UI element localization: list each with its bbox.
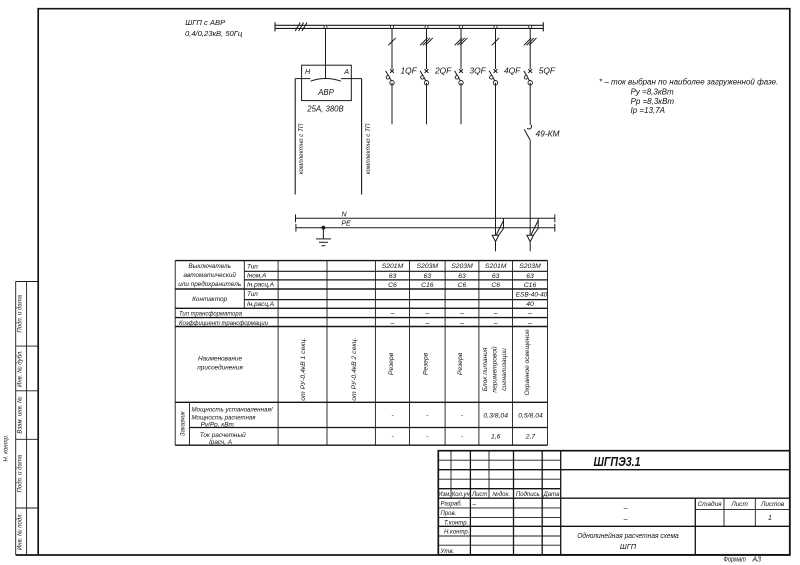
svg-text:–: – <box>390 320 395 327</box>
svg-text:Кол.уч: Кол.уч <box>452 492 470 498</box>
svg-text:ШГПЭ3.1: ШГПЭ3.1 <box>594 454 641 469</box>
svg-text:Подп. и дата: Подп. и дата <box>18 294 24 332</box>
svg-text:S203M: S203M <box>451 263 473 270</box>
svg-text:1,6: 1,6 <box>491 433 501 440</box>
svg-text:Подпись: Подпись <box>516 492 540 498</box>
svg-text:S203M: S203M <box>417 263 439 270</box>
svg-text:или предохранитель: или предохранитель <box>178 280 241 288</box>
svg-text:63: 63 <box>458 273 466 280</box>
svg-text:периметровой: периметровой <box>491 346 499 392</box>
svg-text:Iн,расц,А: Iн,расц,А <box>247 282 274 289</box>
svg-text:Заказчик: Заказчик <box>180 410 186 436</box>
svg-text:0,4/0,23кВ, 50Гц: 0,4/0,23кВ, 50Гц <box>185 29 243 38</box>
svg-text:Инв. № дубл.: Инв. № дубл. <box>17 350 24 387</box>
svg-text:Тип трансформатора: Тип трансформатора <box>179 311 242 318</box>
svg-text:Iр =13,7А: Iр =13,7А <box>631 106 665 115</box>
svg-text:63: 63 <box>492 273 500 280</box>
svg-text:Мощность расчетная: Мощность расчетная <box>192 415 257 422</box>
svg-text:Тип: Тип <box>247 291 258 298</box>
svg-text:присоединения: присоединения <box>197 363 243 371</box>
svg-text:–: – <box>472 502 477 508</box>
svg-text:Коэффициент трансформации: Коэффициент трансформации <box>179 320 268 327</box>
svg-text:2QF: 2QF <box>434 66 452 76</box>
svg-text:Блок питания: Блок питания <box>482 347 489 391</box>
svg-text:Охранное освещение: Охранное освещение <box>524 329 531 396</box>
svg-text:С16: С16 <box>524 282 537 289</box>
svg-text:–: – <box>493 320 498 327</box>
svg-text:автоматический: автоматический <box>183 271 236 279</box>
svg-text:Утв.: Утв. <box>440 549 455 555</box>
svg-text:5QF: 5QF <box>539 66 556 76</box>
svg-text:Мощность установленная/: Мощность установленная/ <box>192 406 274 413</box>
svg-text:Формат: Формат <box>723 557 746 564</box>
svg-text:С16: С16 <box>421 282 434 289</box>
svg-text:АВР: АВР <box>317 88 334 97</box>
svg-text:Тип: Тип <box>247 264 258 271</box>
svg-text:Т.контр.: Т.контр. <box>444 520 468 526</box>
svg-text:Резерв: Резерв <box>422 352 429 375</box>
svg-text:Подп. и дата: Подп. и дата <box>18 454 24 492</box>
svg-text:Лист: Лист <box>471 492 487 498</box>
svg-text:Инв. № подл.: Инв. № подл. <box>17 513 24 550</box>
svg-text:S201M: S201M <box>485 263 507 270</box>
svg-text:Н: Н <box>305 67 311 76</box>
svg-text:Резерв: Резерв <box>457 352 464 375</box>
svg-text:4QF: 4QF <box>504 66 521 76</box>
svg-text:Контактор: Контактор <box>192 296 228 303</box>
svg-text:Листов: Листов <box>760 501 785 508</box>
svg-text:3QF: 3QF <box>470 66 487 76</box>
svg-text:Однолинейная расчетная схема: Однолинейная расчетная схема <box>577 531 679 540</box>
svg-text:49-КМ: 49-КМ <box>536 129 560 139</box>
svg-text:–: – <box>527 320 532 327</box>
svg-text:Ток расчетный: Ток расчетный <box>200 431 246 439</box>
svg-text:Разраб.: Разраб. <box>441 501 463 507</box>
svg-text:А3: А3 <box>752 557 762 564</box>
svg-text:Взам. инв. №: Взам. инв. № <box>17 396 24 434</box>
svg-text:–: – <box>424 320 429 327</box>
svg-text:от РУ-0,4кВ 1 секц.: от РУ-0,4кВ 1 секц. <box>300 338 307 401</box>
svg-text:S203M: S203M <box>519 263 541 270</box>
svg-text:Дата: Дата <box>542 492 559 498</box>
svg-text:Iрасч, А: Iрасч, А <box>209 439 232 446</box>
svg-text:А: А <box>343 67 349 76</box>
svg-text:2,7: 2,7 <box>525 433 536 440</box>
svg-text:ESB-40-40: ESB-40-40 <box>516 292 548 299</box>
svg-text:63: 63 <box>389 273 397 280</box>
svg-text:1QF: 1QF <box>401 66 418 76</box>
svg-text:С6: С6 <box>491 282 500 289</box>
svg-text:№док.: №док. <box>492 491 510 498</box>
svg-text:комплектно с ТП: комплектно с ТП <box>298 123 305 174</box>
svg-text:Пров.: Пров. <box>441 511 457 517</box>
svg-text:* – ток выбран по наиболее з: * – ток выбран по наиболее загруженной ф… <box>599 77 778 86</box>
svg-text:–: – <box>623 505 628 512</box>
svg-text:Ру =8,3кВт: Ру =8,3кВт <box>631 88 674 97</box>
svg-text:0,3/8,04: 0,3/8,04 <box>483 413 508 420</box>
svg-text:40: 40 <box>526 301 534 308</box>
svg-text:С6: С6 <box>458 282 467 289</box>
svg-text:Н. контр.: Н. контр. <box>4 434 10 461</box>
svg-text:Резерв: Резерв <box>388 352 395 375</box>
svg-text:сигнализации: сигнализации <box>501 348 508 391</box>
svg-text:Выключатель: Выключатель <box>188 263 231 270</box>
svg-text:ШГП: ШГП <box>620 542 637 551</box>
svg-text:S201M: S201M <box>382 263 404 270</box>
svg-text:PE: PE <box>341 221 351 228</box>
svg-text:С6: С6 <box>388 282 397 289</box>
svg-text:1: 1 <box>768 515 772 522</box>
svg-text:Стадия: Стадия <box>698 500 723 508</box>
svg-text:Ру/Рр, кВт: Ру/Рр, кВт <box>201 422 235 429</box>
svg-text:63: 63 <box>526 273 534 280</box>
svg-text:Iном,А: Iном,А <box>247 273 266 280</box>
svg-text:Iн,расц,А: Iн,расц,А <box>247 301 274 308</box>
svg-text:Н.контр.: Н.контр. <box>444 530 469 536</box>
svg-text:Изм.: Изм. <box>438 492 451 498</box>
svg-text:–: – <box>493 311 498 318</box>
svg-text:–: – <box>459 311 464 318</box>
svg-text:от РУ-0,4кВ 2 секц.: от РУ-0,4кВ 2 секц. <box>351 338 358 401</box>
svg-text:ШГП с АВР: ШГП с АВР <box>185 18 226 27</box>
svg-text:25А, 380В: 25А, 380В <box>306 105 343 114</box>
svg-text:–: – <box>424 311 429 318</box>
svg-text:–: – <box>623 517 628 524</box>
svg-text:0,5/8,04: 0,5/8,04 <box>518 413 543 420</box>
svg-text:–: – <box>459 320 464 327</box>
svg-text:Наименование: Наименование <box>198 356 243 363</box>
svg-text:63: 63 <box>424 273 432 280</box>
svg-text:–: – <box>390 311 395 318</box>
svg-text:Лист: Лист <box>730 501 748 508</box>
svg-text:Рр =8,3кВт: Рр =8,3кВт <box>631 97 675 106</box>
svg-text:–: – <box>527 311 532 318</box>
svg-text:комплектно с ТП: комплектно с ТП <box>365 123 372 174</box>
